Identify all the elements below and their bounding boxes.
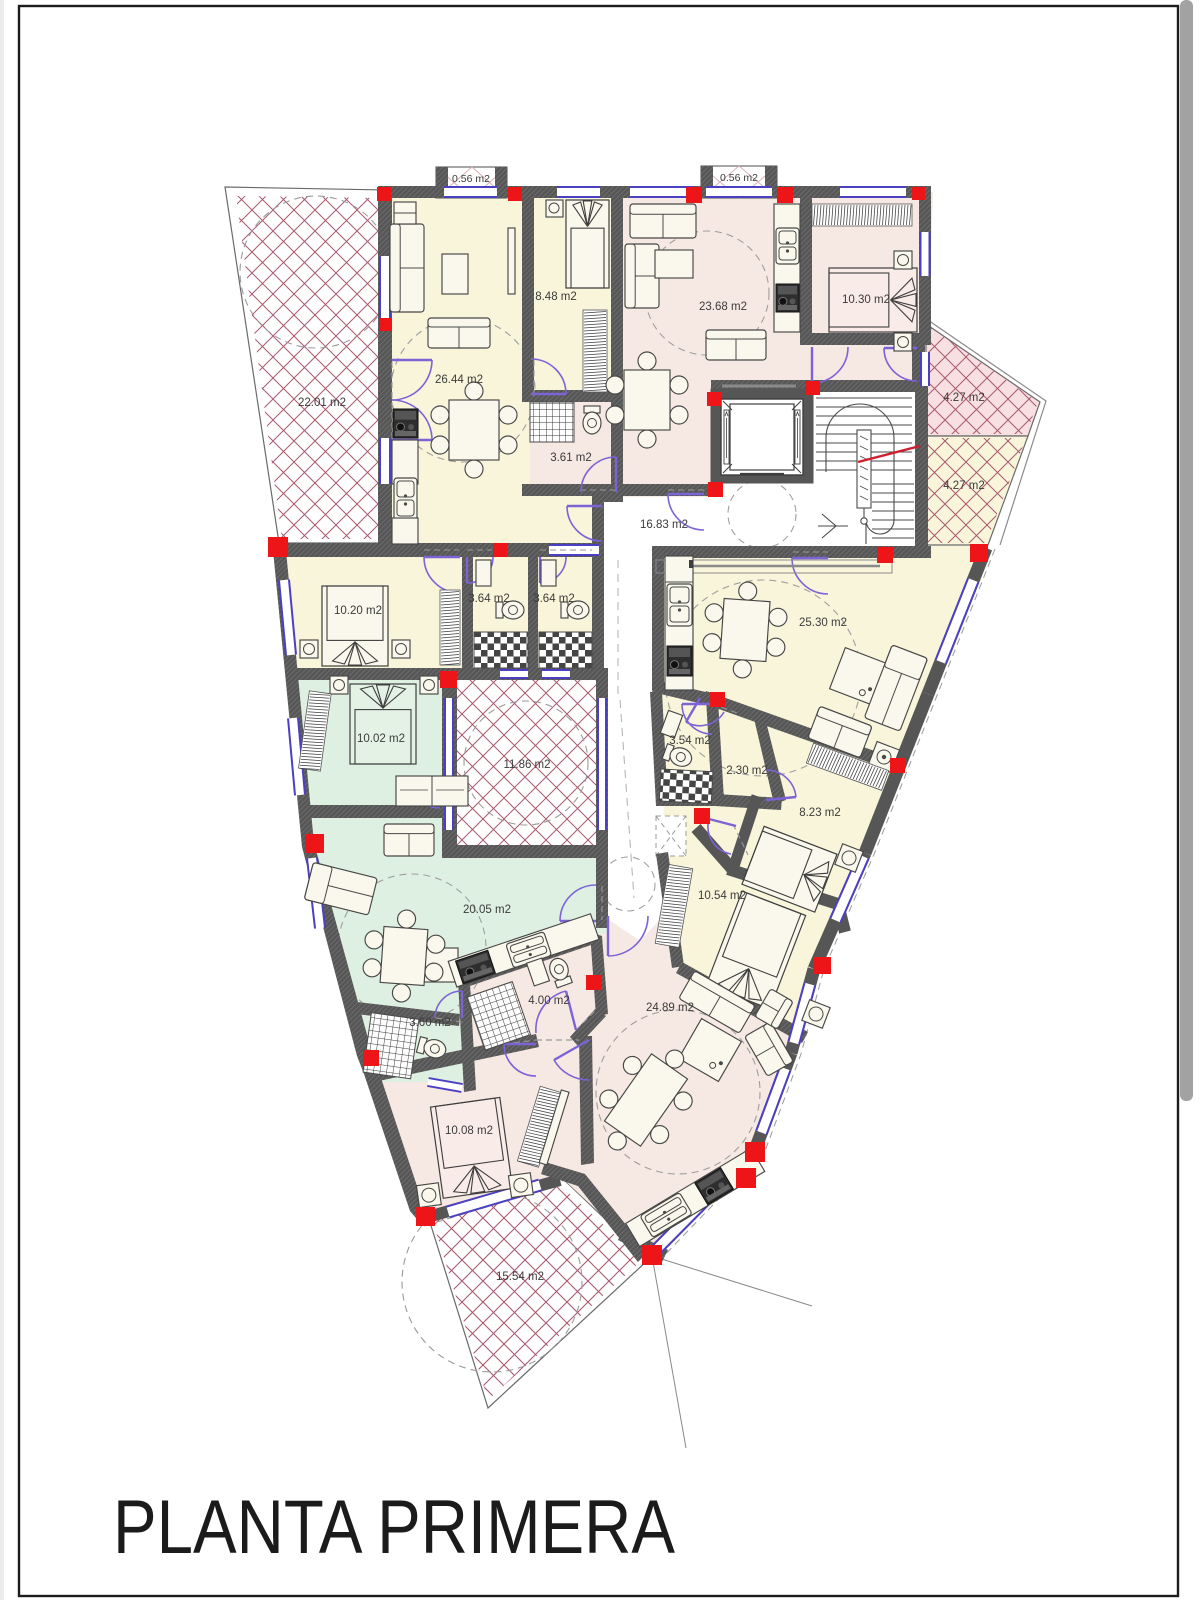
svg-text:8.23 m2: 8.23 m2: [799, 807, 841, 819]
svg-text:3.61 m2: 3.61 m2: [550, 452, 592, 464]
svg-text:8.48 m2: 8.48 m2: [535, 291, 577, 303]
svg-text:10.02 m2: 10.02 m2: [357, 733, 405, 745]
svg-text:10.54 m2: 10.54 m2: [698, 890, 746, 902]
svg-text:26.44 m2: 26.44 m2: [435, 374, 483, 386]
svg-text:11.86 m2: 11.86 m2: [503, 759, 550, 771]
svg-text:10.30 m2: 10.30 m2: [842, 294, 890, 306]
svg-text:23.68 m2: 23.68 m2: [699, 301, 747, 313]
svg-text:PLANTA PRIMERA: PLANTA PRIMERA: [113, 1485, 675, 1570]
svg-text:20.05 m2: 20.05 m2: [463, 904, 511, 916]
svg-text:10.08 m2: 10.08 m2: [445, 1125, 493, 1137]
svg-text:22.01 m2: 22.01 m2: [298, 397, 346, 409]
svg-text:3.60 m2: 3.60 m2: [409, 1017, 451, 1029]
svg-text:3.54 m2: 3.54 m2: [669, 735, 711, 747]
svg-text:4.27 m2: 4.27 m2: [943, 480, 985, 492]
svg-text:3.64 m2: 3.64 m2: [468, 593, 510, 605]
svg-text:2.30 m2: 2.30 m2: [726, 765, 768, 777]
svg-text:0.56 m2: 0.56 m2: [452, 173, 490, 185]
svg-text:15.54 m2: 15.54 m2: [496, 1271, 544, 1283]
svg-text:0.56 m2: 0.56 m2: [720, 172, 758, 184]
svg-text:4.27 m2: 4.27 m2: [943, 392, 985, 404]
svg-text:25.30 m2: 25.30 m2: [799, 617, 847, 629]
svg-text:10.20 m2: 10.20 m2: [334, 605, 382, 617]
svg-text:24.89 m2: 24.89 m2: [646, 1002, 694, 1014]
svg-text:16.83 m2: 16.83 m2: [640, 519, 688, 531]
svg-text:4.00 m2: 4.00 m2: [528, 995, 570, 1007]
svg-text:3.64 m2: 3.64 m2: [533, 593, 575, 605]
